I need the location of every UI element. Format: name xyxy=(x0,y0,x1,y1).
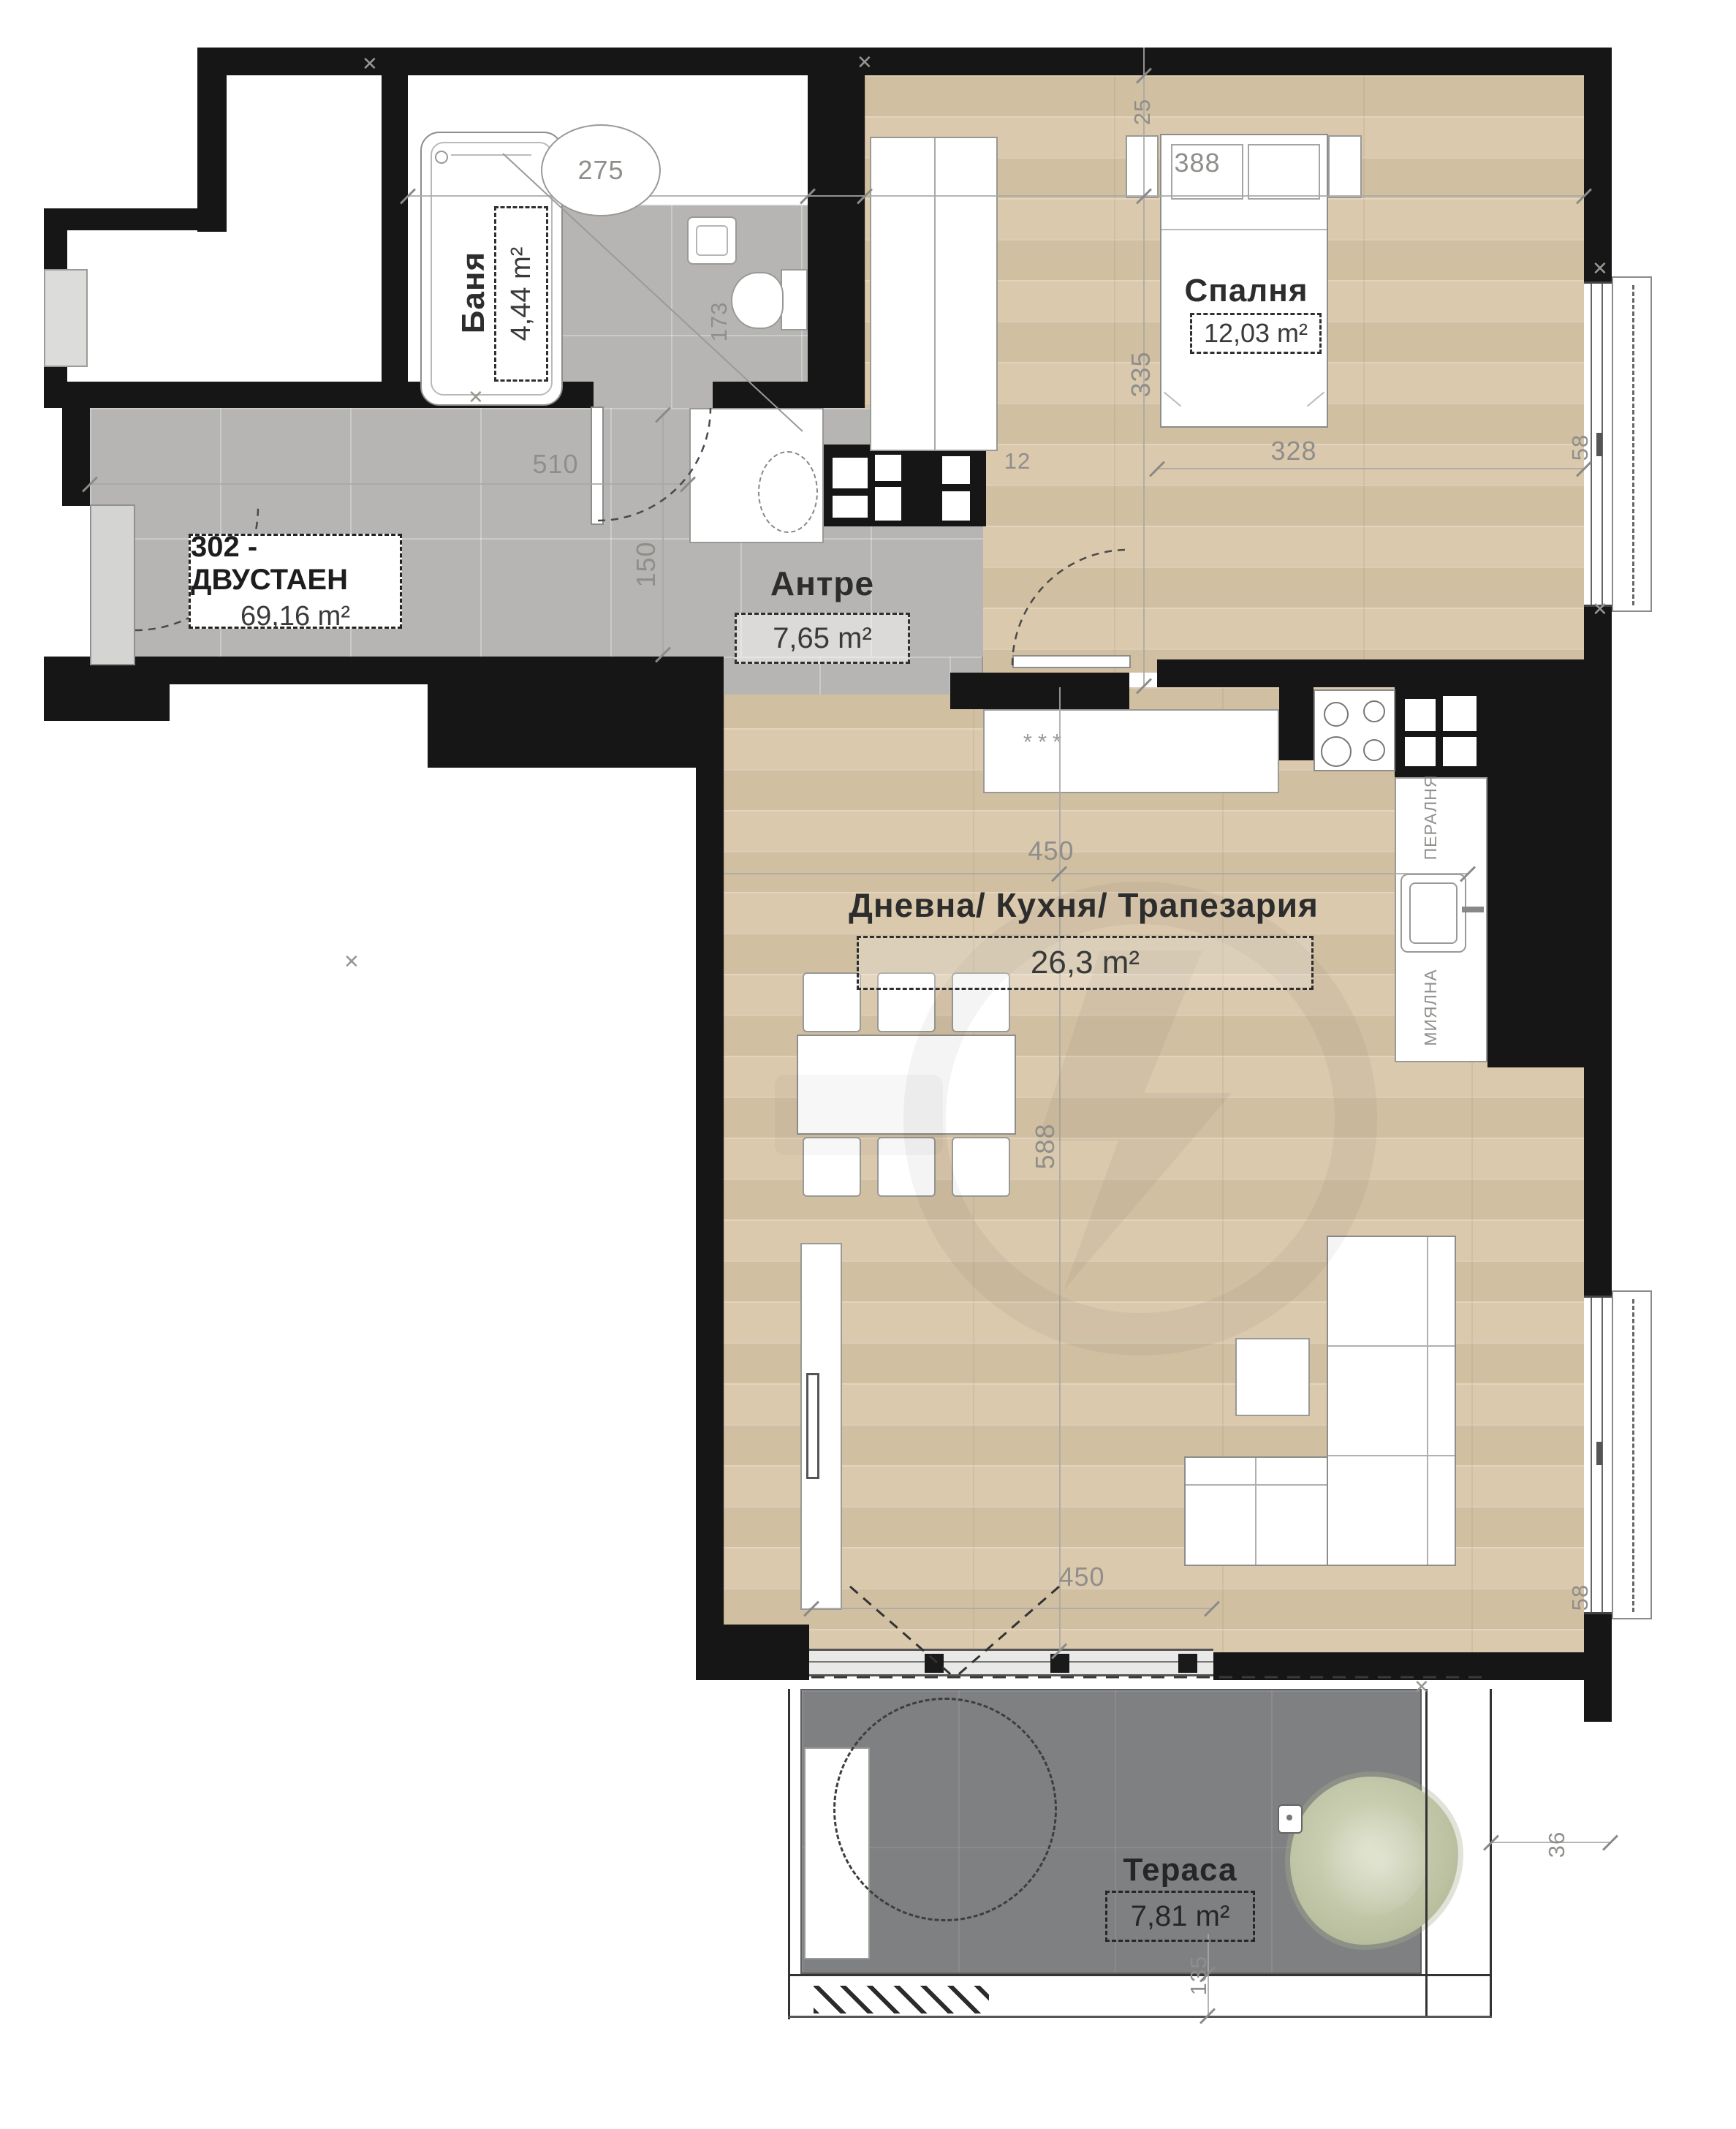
hallway-area-box: 7,65 m² xyxy=(735,613,910,664)
dim-shaft: 12 xyxy=(988,446,1047,477)
dim-living-window: 58 xyxy=(1567,1572,1593,1623)
living-area: 26,3 m² xyxy=(1031,945,1140,981)
unit-label-box: 302 - ДВУСТАЕН 69,16 m² xyxy=(189,534,402,629)
terrace-name: Тераса xyxy=(1113,1851,1248,1889)
joint-cross: ✕ xyxy=(857,51,873,74)
dim-hall-depth: 150 xyxy=(632,524,661,605)
bathroom-area-box: 4,44 m² xyxy=(494,206,548,382)
dim-terrace-door: 450 xyxy=(1038,1559,1126,1595)
bathroom-name: Баня xyxy=(452,230,495,355)
dim-wall-offset: 25 xyxy=(1128,86,1157,137)
dim-bedroom-depth: 335 xyxy=(1126,330,1156,418)
dim-living-depth: 588 xyxy=(1031,1103,1060,1190)
joint-cross: ✕ xyxy=(1592,598,1608,621)
dim-hall-width: 510 xyxy=(508,447,603,481)
bedroom-name: Спалня xyxy=(1166,272,1327,310)
living-name: Дневна/ Кухня/ Трапезария xyxy=(841,885,1327,926)
bedroom-door-arc xyxy=(1012,550,1128,665)
unit-number: 302 - ДВУСТАЕН xyxy=(191,531,400,597)
hallway-area: 7,65 m² xyxy=(773,622,872,655)
unit-area: 69,16 m² xyxy=(240,601,350,632)
floor-plan: *** ПЕРАЛНЯ МИЯЛНА xyxy=(0,0,1736,2129)
terrace-area-box: 7,81 m² xyxy=(1105,1891,1255,1942)
dim-bath-width-oval: 275 xyxy=(541,124,661,216)
joint-cross: ✕ xyxy=(1414,1676,1430,1698)
terrace-door-swing-right xyxy=(955,1587,1059,1677)
living-area-box: 26,3 m² xyxy=(857,936,1314,990)
joint-cross: ✕ xyxy=(1592,257,1608,280)
dim-kitchen-width: 450 xyxy=(1007,833,1095,869)
hallway-name: Антре xyxy=(753,563,892,604)
joint-cross: ✕ xyxy=(468,386,484,409)
dim-bedroom-window: 58 xyxy=(1567,422,1593,473)
bedroom-area: 12,03 m² xyxy=(1204,318,1308,349)
bathroom-area: 4,44 m² xyxy=(506,247,537,341)
dim-bedroom-width: 388 xyxy=(1153,146,1241,180)
dim-bed-width: 328 xyxy=(1246,434,1341,468)
bathroom-door-arc xyxy=(598,408,710,521)
plan-overlay xyxy=(0,0,1736,2129)
terrace-door-swing-left xyxy=(850,1587,954,1677)
joint-cross: ✕ xyxy=(344,950,360,973)
bedroom-area-box: 12,03 m² xyxy=(1190,313,1322,354)
joint-cross: ✕ xyxy=(362,53,378,75)
terrace-area: 7,81 m² xyxy=(1131,1900,1230,1933)
dim-terrace-right: 36 xyxy=(1544,1819,1570,1870)
dim-bath-width: 275 xyxy=(577,155,623,186)
dim-toilet-niche: 173 xyxy=(706,281,732,362)
